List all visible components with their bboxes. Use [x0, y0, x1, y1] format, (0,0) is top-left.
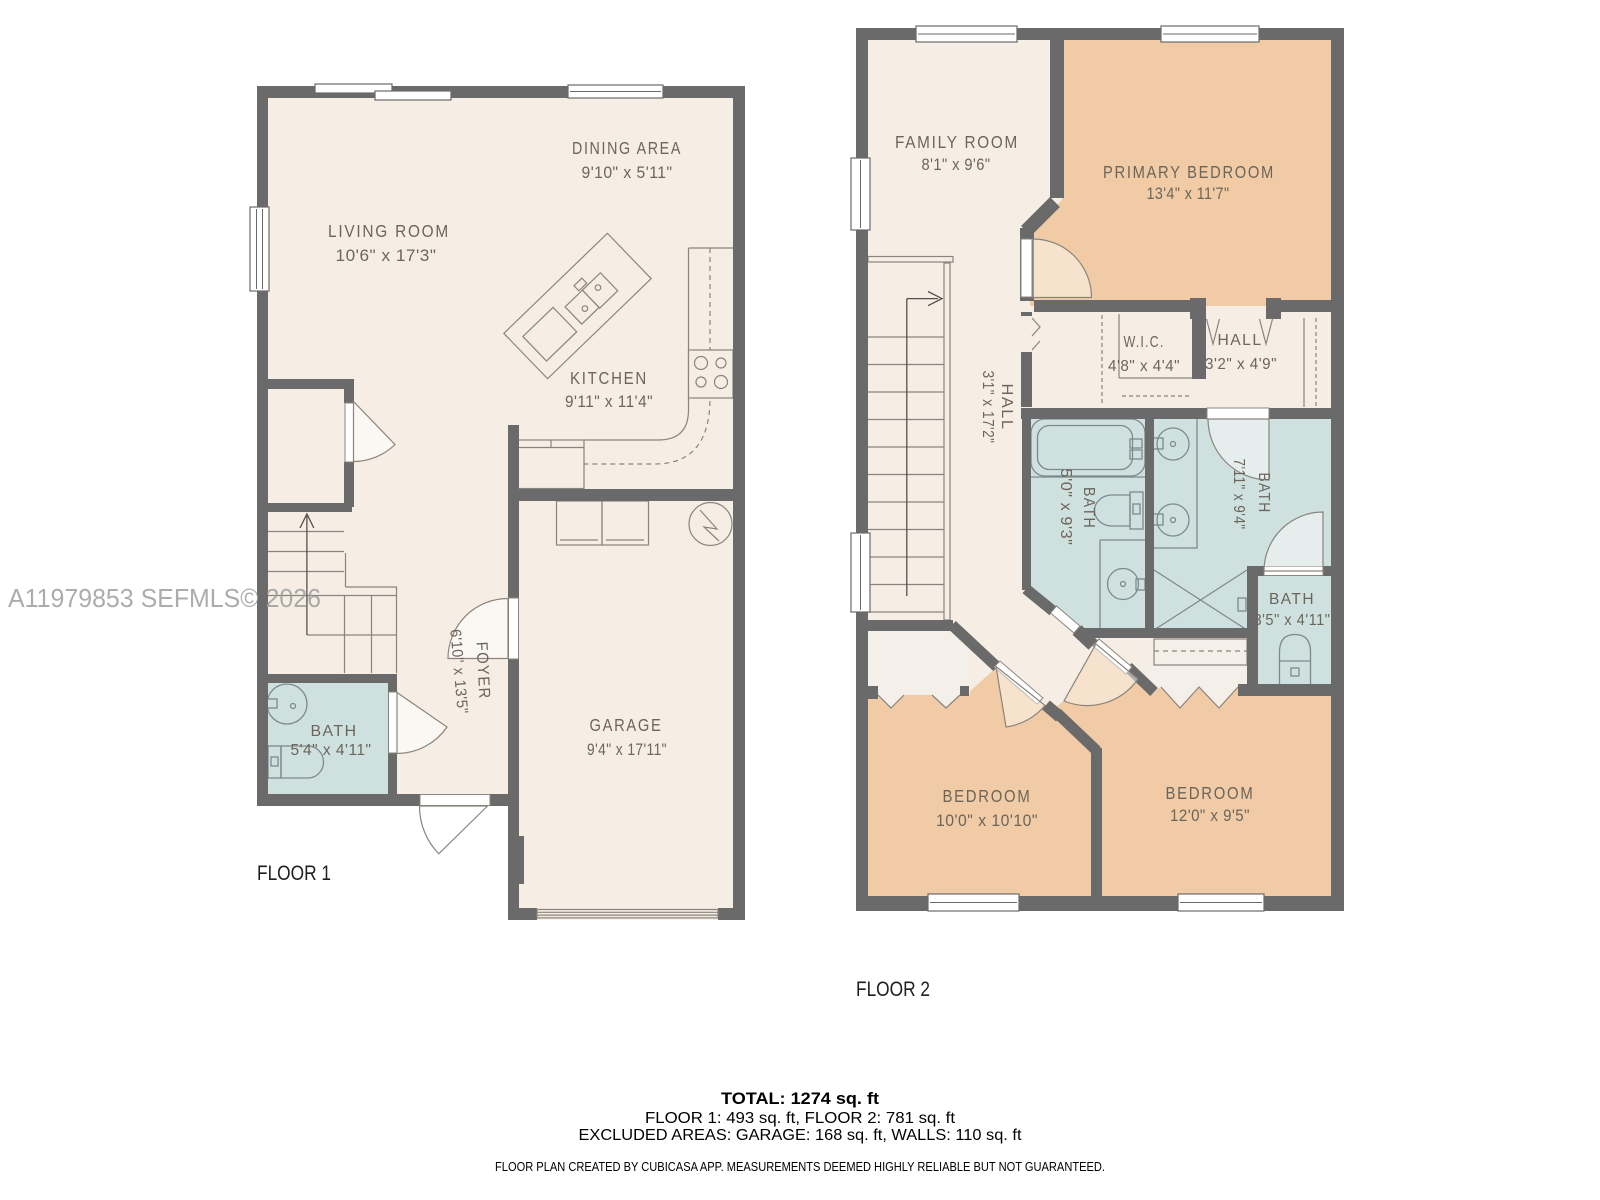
svg-text:BATH: BATH [1269, 591, 1315, 608]
svg-text:5'0" x 9'3": 5'0" x 9'3" [1057, 469, 1074, 546]
svg-text:KITCHEN: KITCHEN [570, 368, 648, 388]
svg-text:3'5" x 4'11": 3'5" x 4'11" [1254, 612, 1331, 629]
svg-text:10'6" x 17'3": 10'6" x 17'3" [336, 247, 437, 265]
svg-text:FLOOR 1: FLOOR 1 [257, 862, 331, 885]
svg-text:FLOOR 2: FLOOR 2 [856, 978, 930, 1001]
svg-text:9'4" x 17'11": 9'4" x 17'11" [587, 741, 667, 759]
svg-text:BATH: BATH [311, 723, 358, 740]
svg-text:HALL: HALL [998, 384, 1015, 431]
svg-text:3'2" x 4'9": 3'2" x 4'9" [1205, 356, 1277, 373]
svg-text:5'4" x 4'11": 5'4" x 4'11" [291, 742, 372, 759]
svg-text:BATH: BATH [1255, 473, 1272, 514]
svg-text:EXCLUDED AREAS: GARAGE: 168 sq: EXCLUDED AREAS: GARAGE: 168 sq. ft, WALL… [579, 1127, 1023, 1144]
svg-text:FOYER: FOYER [472, 641, 492, 700]
svg-text:13'4" x 11'7": 13'4" x 11'7" [1147, 185, 1230, 203]
svg-text:4'8" x 4'4": 4'8" x 4'4" [1108, 358, 1180, 375]
svg-text:FLOOR 1: 493 sq. ft, FLOOR 2:: FLOOR 1: 493 sq. ft, FLOOR 2: 781 sq. ft [645, 1110, 956, 1127]
svg-text:10'0" x 10'10": 10'0" x 10'10" [936, 812, 1038, 830]
svg-text:8'1" x 9'6": 8'1" x 9'6" [922, 156, 991, 174]
svg-text:FAMILY ROOM: FAMILY ROOM [895, 132, 1019, 152]
svg-text:7'11" x 9'4": 7'11" x 9'4" [1230, 459, 1247, 530]
svg-text:W.I.C.: W.I.C. [1124, 334, 1165, 351]
svg-text:3'1" x 17'2": 3'1" x 17'2" [979, 371, 996, 444]
svg-text:TOTAL: 1274 sq. ft: TOTAL: 1274 sq. ft [721, 1090, 880, 1108]
svg-text:FLOOR PLAN CREATED BY CUBICASA: FLOOR PLAN CREATED BY CUBICASA APP. MEAS… [495, 1159, 1105, 1174]
svg-text:A11979853 SEFMLS© 2026: A11979853 SEFMLS© 2026 [8, 583, 321, 613]
svg-text:BATH: BATH [1080, 487, 1097, 529]
svg-text:BEDROOM: BEDROOM [943, 786, 1032, 806]
svg-text:DINING AREA: DINING AREA [572, 138, 682, 158]
svg-text:BEDROOM: BEDROOM [1166, 783, 1255, 803]
svg-text:LIVING ROOM: LIVING ROOM [328, 221, 450, 241]
svg-text:9'10" x 5'11": 9'10" x 5'11" [582, 164, 673, 182]
svg-text:12'0" x 9'5": 12'0" x 9'5" [1170, 807, 1250, 825]
svg-text:PRIMARY BEDROOM: PRIMARY BEDROOM [1103, 162, 1275, 182]
svg-text:GARAGE: GARAGE [590, 715, 663, 735]
svg-text:HALL: HALL [1218, 332, 1263, 349]
svg-text:9'11" x 11'4": 9'11" x 11'4" [565, 393, 653, 411]
